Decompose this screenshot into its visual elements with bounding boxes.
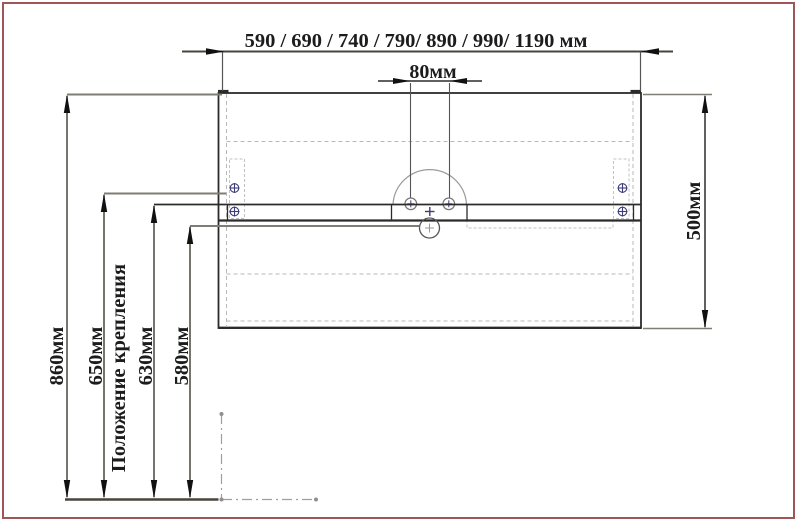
mounting-position-label: Положение крепления bbox=[108, 264, 130, 472]
centerline-dot-corner bbox=[220, 498, 224, 502]
overall-height-label: 860мм bbox=[46, 327, 68, 386]
vanity-installation-diagram: 590 / 690 / 740 / 790/ 890 / 990/ 1190 м… bbox=[0, 0, 800, 529]
cabinet bbox=[218, 92, 641, 329]
centerline-dot-top bbox=[220, 412, 224, 416]
top-width-label: 590 / 690 / 740 / 790/ 890 / 990/ 1190 м… bbox=[245, 30, 588, 52]
centerline-dot-end bbox=[314, 498, 318, 502]
mounting-height-label: 650мм bbox=[85, 327, 107, 386]
hole-spacing-label: 80мм bbox=[409, 61, 456, 83]
cabinet-height-label: 500мм bbox=[683, 182, 705, 241]
drain-height-label: 580мм bbox=[171, 327, 193, 386]
technical-drawing: 590 / 690 / 740 / 790/ 890 / 990/ 1190 м… bbox=[0, 0, 800, 529]
upper-edge-height-label: 630мм bbox=[135, 327, 157, 386]
